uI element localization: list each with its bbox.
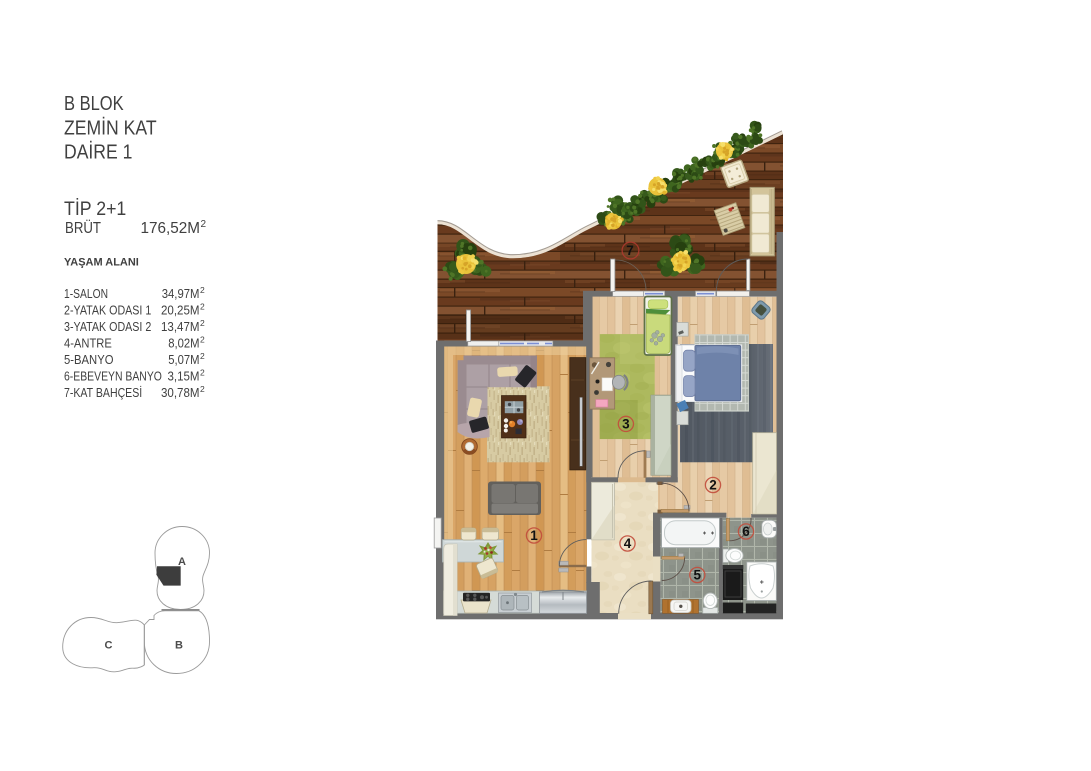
- svg-text:2: 2: [200, 302, 205, 312]
- svg-text:ZEMİN KAT: ZEMİN KAT: [64, 117, 157, 140]
- svg-text:2: 2: [200, 384, 205, 394]
- svg-text:6-EBEVEYN BANYO: 6-EBEVEYN BANYO: [64, 370, 162, 384]
- svg-text:C: C: [105, 640, 113, 652]
- svg-text:3,15M: 3,15M: [168, 370, 200, 384]
- svg-text:2: 2: [200, 351, 205, 361]
- svg-text:2: 2: [200, 368, 205, 378]
- svg-text:1: 1: [530, 528, 538, 543]
- svg-text:5,07M: 5,07M: [168, 353, 199, 367]
- svg-text:A: A: [178, 556, 186, 568]
- svg-text:BRÜT: BRÜT: [65, 219, 101, 237]
- svg-text:TİP 2+1: TİP 2+1: [64, 199, 126, 220]
- svg-text:6: 6: [742, 524, 750, 539]
- svg-text:2: 2: [709, 478, 717, 493]
- svg-text:8,02M: 8,02M: [168, 337, 199, 351]
- svg-text:4: 4: [624, 536, 632, 551]
- svg-text:2-YATAK ODASI 1: 2-YATAK ODASI 1: [64, 304, 151, 318]
- svg-text:3: 3: [622, 417, 630, 432]
- svg-text:DAİRE 1: DAİRE 1: [64, 141, 132, 164]
- svg-text:3-YATAK ODASI 2: 3-YATAK ODASI 2: [64, 320, 151, 334]
- svg-text:2: 2: [200, 335, 205, 345]
- svg-text:2: 2: [200, 285, 205, 295]
- svg-text:34,97M: 34,97M: [162, 287, 200, 301]
- svg-text:20,25M: 20,25M: [161, 304, 200, 318]
- svg-text:5: 5: [694, 568, 702, 583]
- svg-text:2: 2: [200, 318, 205, 328]
- svg-text:176,52M: 176,52M: [141, 220, 201, 237]
- svg-text:30,78M: 30,78M: [161, 386, 200, 400]
- svg-text:2: 2: [201, 219, 207, 230]
- svg-text:1-SALON: 1-SALON: [64, 287, 108, 301]
- svg-text:7: 7: [626, 243, 634, 258]
- svg-text:7-KAT BAHÇESİ: 7-KAT BAHÇESİ: [64, 386, 142, 400]
- svg-text:B: B: [175, 640, 183, 652]
- svg-text:13,47M: 13,47M: [161, 320, 200, 334]
- svg-text:4-ANTRE: 4-ANTRE: [64, 337, 112, 351]
- svg-text:B BLOK: B BLOK: [64, 93, 124, 115]
- svg-text:5-BANYO: 5-BANYO: [64, 353, 114, 367]
- svg-text:YAŞAM ALANI: YAŞAM ALANI: [64, 257, 139, 269]
